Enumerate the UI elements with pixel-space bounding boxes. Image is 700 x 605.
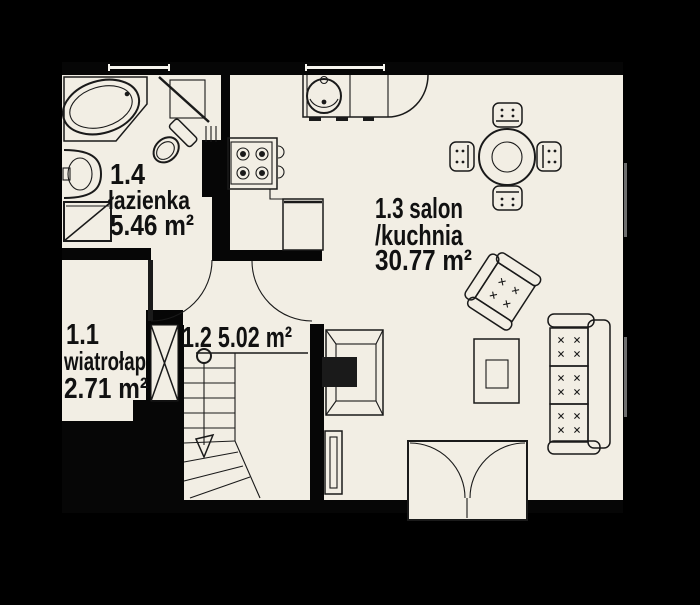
wall-hall-salon (310, 324, 324, 513)
room-area: 30.77 m² (375, 245, 472, 277)
entrance-double-door (408, 441, 527, 520)
window-right-lower (624, 337, 627, 417)
wall-stair-block (133, 400, 184, 513)
window-right-upper (624, 163, 627, 237)
wall-bath-kitchen (221, 72, 230, 142)
wall-bath-bottom (62, 248, 151, 260)
room-area: 2.71 m² (64, 373, 148, 405)
room-number-area: 1.2 5.02 m² (182, 322, 292, 354)
room-name: wiatrołap (63, 346, 146, 376)
label-hall: 1.2 5.02 m² (182, 322, 292, 354)
wall-wiatrolap-bottom (62, 421, 134, 426)
label-salon: 1.3 salon /kuchnia 30.77 m² (375, 193, 472, 277)
room-area: 5.46 m² (110, 210, 194, 242)
wall-kitchen-bottom (212, 250, 322, 261)
wall-bottom (178, 500, 623, 513)
outside-below-wiatrolap (62, 426, 133, 513)
chimney-block (202, 140, 230, 197)
floor-plan-svg: 1.4 łazienka 5.46 m² 1.3 salon /kuchnia … (0, 0, 700, 605)
floor-plan-page: 1.4 łazienka 5.46 m² 1.3 salon /kuchnia … (0, 0, 700, 605)
